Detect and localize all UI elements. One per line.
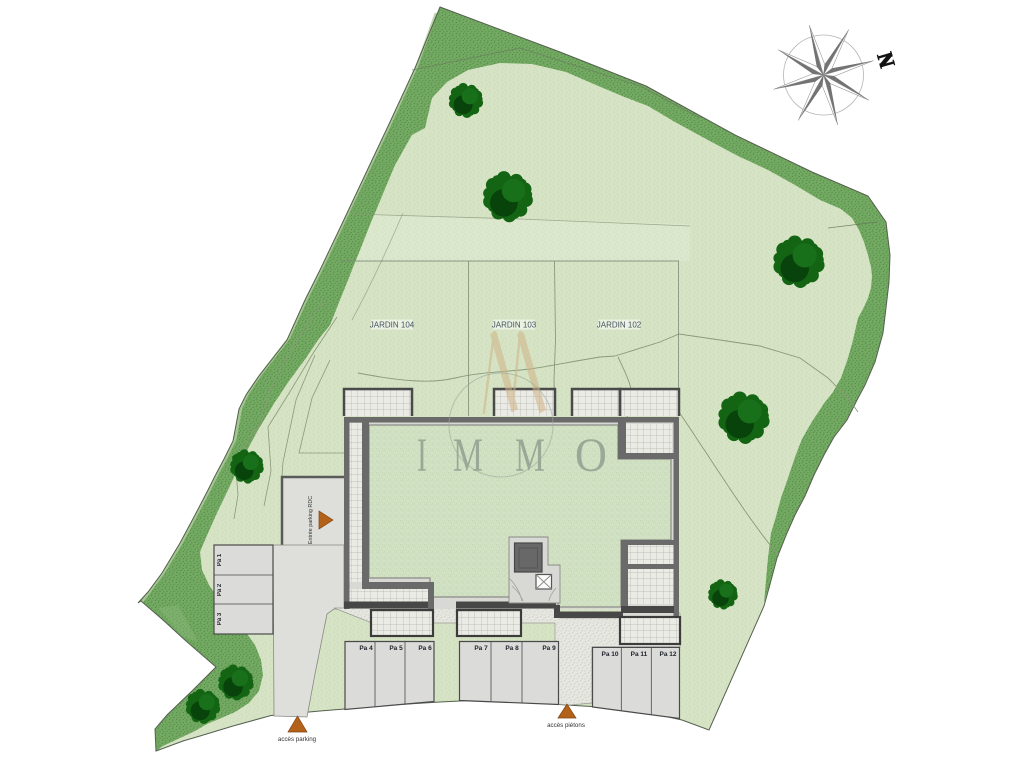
svg-text:Pa 12: Pa 12 (660, 651, 677, 658)
svg-text:I: I (417, 428, 427, 482)
svg-text:M: M (453, 428, 483, 481)
svg-text:O: O (575, 428, 607, 481)
svg-text:JARDIN 104: JARDIN 104 (370, 321, 415, 330)
svg-text:Pa 1: Pa 1 (217, 553, 223, 566)
svg-text:Pa 5: Pa 5 (389, 645, 403, 652)
svg-text:accès parking: accès parking (278, 736, 317, 743)
svg-text:Pa 6: Pa 6 (418, 645, 432, 652)
svg-text:Pa 4: Pa 4 (359, 645, 373, 652)
svg-text:Pa 11: Pa 11 (631, 651, 648, 658)
svg-text:Pa 9: Pa 9 (542, 645, 556, 652)
svg-text:Entrée parking RDC: Entrée parking RDC (308, 496, 314, 544)
svg-text:Pa 3: Pa 3 (217, 612, 223, 625)
svg-text:M: M (515, 428, 545, 481)
svg-text:JARDIN 102: JARDIN 102 (597, 321, 642, 330)
svg-text:JARDIN 103: JARDIN 103 (492, 321, 537, 330)
svg-text:Pa 2: Pa 2 (217, 583, 223, 596)
svg-text:Pa 10: Pa 10 (602, 651, 619, 658)
svg-text:Pa 8: Pa 8 (505, 645, 519, 652)
svg-text:accès piétons: accès piétons (547, 722, 585, 729)
svg-text:Pa 7: Pa 7 (474, 645, 488, 652)
